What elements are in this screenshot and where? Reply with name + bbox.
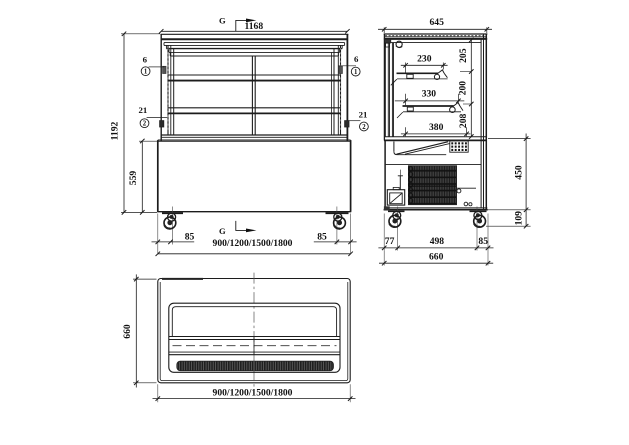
svg-text:85: 85 — [185, 232, 195, 243]
svg-text:200: 200 — [458, 81, 469, 96]
svg-text:559: 559 — [128, 171, 139, 186]
svg-text:900/1200/1500/1800: 900/1200/1500/1800 — [213, 238, 293, 249]
svg-text:900/1200/1500/1800: 900/1200/1500/1800 — [213, 388, 293, 399]
svg-text:21: 21 — [139, 105, 148, 115]
svg-text:85: 85 — [478, 236, 488, 247]
svg-text:330: 330 — [422, 89, 437, 100]
svg-text:1192: 1192 — [110, 121, 121, 140]
svg-text:380: 380 — [429, 122, 444, 133]
svg-text:1: 1 — [144, 69, 148, 76]
svg-text:G: G — [219, 15, 226, 25]
svg-text:85: 85 — [317, 232, 327, 243]
svg-text:21: 21 — [359, 109, 368, 119]
svg-text:6: 6 — [143, 54, 148, 64]
svg-text:660: 660 — [429, 251, 444, 262]
svg-text:109: 109 — [513, 211, 524, 226]
svg-text:2: 2 — [362, 124, 366, 131]
svg-text:6: 6 — [354, 54, 359, 64]
svg-text:230: 230 — [417, 53, 432, 64]
svg-text:645: 645 — [430, 17, 445, 28]
svg-text:77: 77 — [385, 236, 395, 247]
svg-text:G: G — [219, 226, 226, 236]
svg-text:450: 450 — [513, 165, 524, 180]
svg-text:205: 205 — [458, 48, 469, 63]
svg-text:208: 208 — [458, 114, 469, 129]
svg-text:498: 498 — [430, 236, 445, 247]
svg-text:660: 660 — [122, 324, 133, 339]
svg-text:2: 2 — [143, 121, 147, 128]
svg-text:1168: 1168 — [244, 21, 263, 32]
svg-text:1: 1 — [354, 69, 358, 76]
